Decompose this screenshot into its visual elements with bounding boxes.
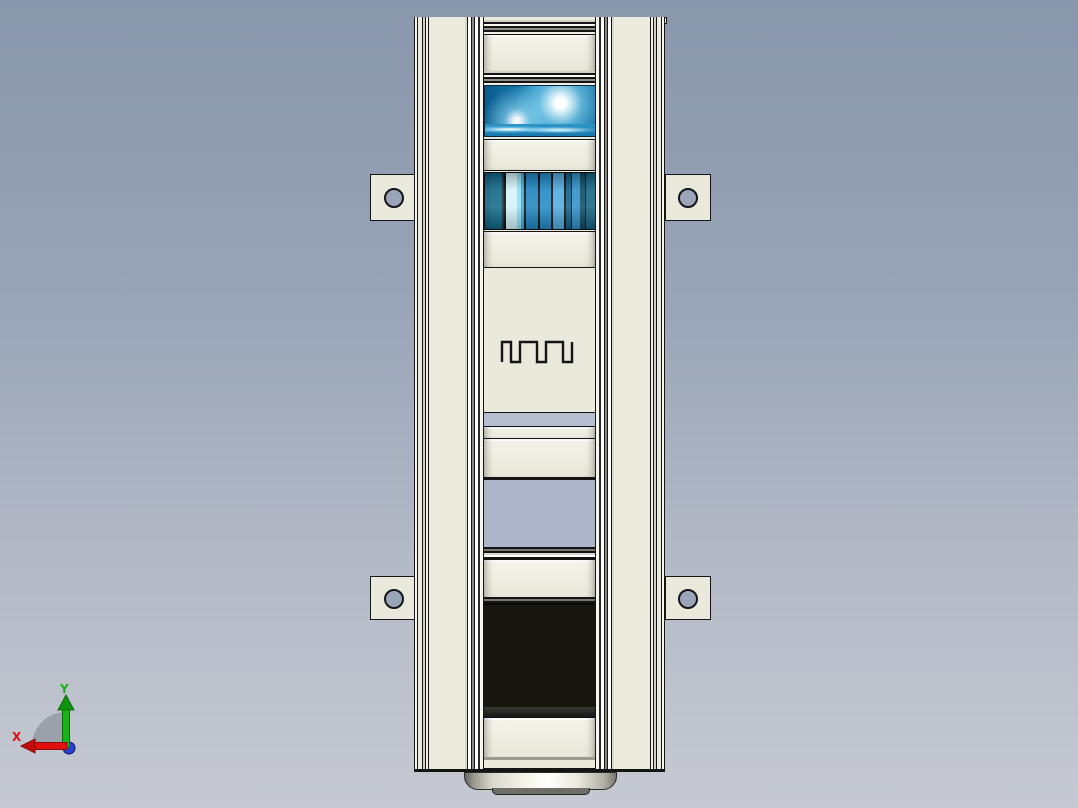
rail-right[interactable] <box>595 17 665 772</box>
tab-hole <box>678 188 698 208</box>
blue-cover-panel[interactable] <box>484 85 597 125</box>
crossbar-5[interactable] <box>484 559 595 599</box>
dark-band <box>484 707 595 717</box>
crossbar-1[interactable] <box>484 34 595 73</box>
crossbar-3[interactable] <box>484 231 595 268</box>
coupling-jaw-pattern <box>495 336 580 366</box>
x-axis-label: X <box>12 730 22 744</box>
y-axis-label: Y <box>59 682 69 696</box>
base-under-plate <box>492 788 590 795</box>
trim-band <box>484 547 595 559</box>
blue-cover-lower-band[interactable] <box>484 124 597 137</box>
clamp-cavity <box>484 603 595 719</box>
mounting-tab-top-right[interactable] <box>665 174 711 221</box>
cad-viewport[interactable]: X Y <box>0 0 1078 808</box>
rail-left[interactable] <box>414 17 484 772</box>
triad-sector <box>32 712 66 746</box>
mounting-tab-bottom-right[interactable] <box>665 576 711 620</box>
x-axis-arrowhead <box>21 739 35 753</box>
crossbar-2[interactable] <box>484 139 595 171</box>
x-axis-shaft <box>34 743 67 750</box>
hole-plate[interactable] <box>484 438 595 478</box>
trim-band <box>484 71 595 85</box>
top-trim-band <box>484 20 595 34</box>
finned-motor-body[interactable] <box>484 172 597 230</box>
mounting-tab-top-left[interactable] <box>370 174 416 221</box>
tab-hole <box>384 589 404 609</box>
mounting-tab-bottom-left[interactable] <box>370 576 416 620</box>
crossbar-6[interactable] <box>484 717 595 759</box>
axis-triad: X Y <box>0 660 120 800</box>
y-axis-arrowhead <box>58 695 74 710</box>
hub-cavity <box>484 478 595 548</box>
tab-hole <box>678 589 698 609</box>
tab-hole <box>384 188 404 208</box>
